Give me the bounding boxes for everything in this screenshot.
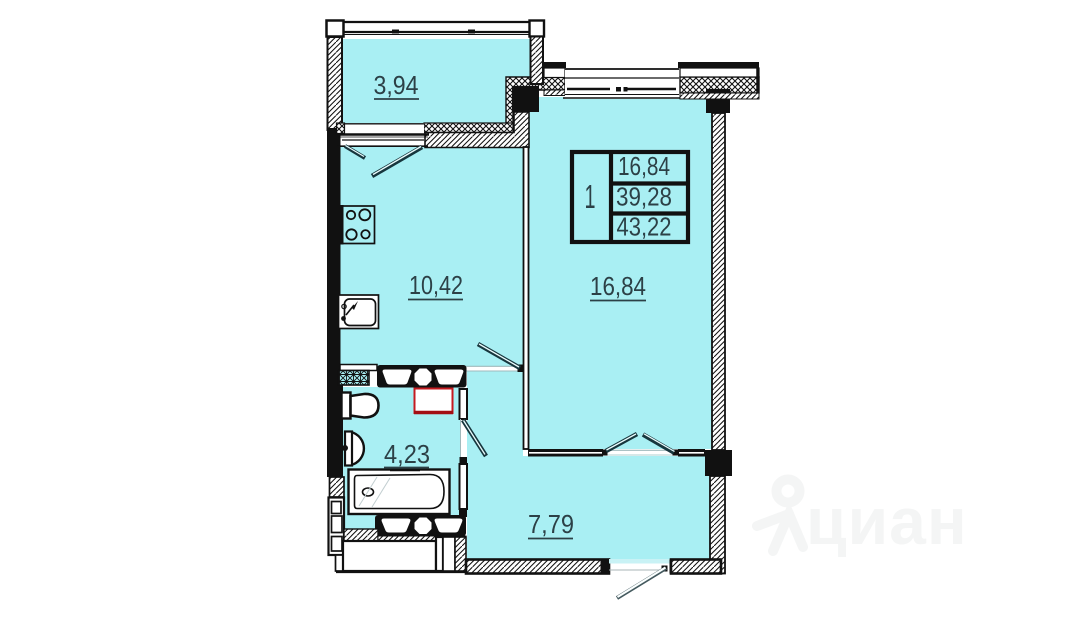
svg-text:43,22: 43,22 (617, 214, 672, 242)
svg-text:1: 1 (585, 178, 596, 215)
svg-text:7,79: 7,79 (528, 509, 574, 539)
svg-text:39,28: 39,28 (616, 184, 672, 212)
svg-text:10,42: 10,42 (409, 270, 463, 300)
svg-text:циан: циан (806, 484, 968, 558)
svg-text:16,84: 16,84 (618, 153, 670, 181)
svg-text:4,23: 4,23 (384, 439, 430, 469)
svg-text:3,94: 3,94 (374, 70, 419, 100)
svg-text:16,84: 16,84 (590, 271, 646, 301)
